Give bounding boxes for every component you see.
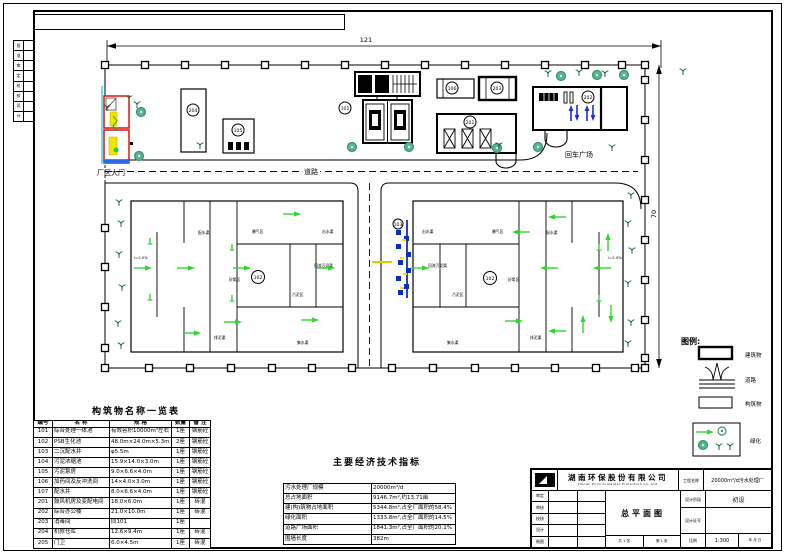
table-cell: 8.0×6.6×4.0m [110,488,172,498]
table-row: 102PSB生化池48.0m×24.0m×5.3m2座钢筋砼 [34,437,211,447]
table-row: 105污泥泵房9.0×6.6×4.0m1座钢筋砼 [34,468,211,478]
table-row: 编号名 称规 格数量备 注 [34,421,211,428]
table-cell: 15.9×14.0×3.0m [110,458,172,468]
road-label: 道路 [303,166,320,176]
table-cell: 砖混 [190,508,211,518]
svg-text:70: 70 [650,210,658,218]
drawing-page: { "frame": { "strip_rows": ["批","准","审",… [0,0,786,555]
svg-text:集水渠: 集水渠 [297,340,309,345]
legend-building-icon [699,347,732,359]
table-cell: 道路广场面积 [284,524,372,534]
indicators-table: 污水处理厂规模20000m³/d总占地面积9146.7m²,约13.71亩建(构… [283,483,456,545]
table-cell: 6.0×4.5m [110,538,172,548]
svg-text:202: 202 [584,95,593,101]
table-row: 总占地面积9146.7m²,约13.71亩 [284,494,456,504]
table-cell: 门卫 [53,538,110,548]
airflow-arrows [569,105,596,121]
table-cell: 围墙长度 [284,534,372,544]
table-cell: 205 [34,538,53,548]
table-cell: 101 [34,427,53,437]
svg-text:污泥区: 污泥区 [292,292,304,297]
table-cell: 203 [34,518,53,528]
table-row: 203消毒间同1011座 [34,518,211,528]
svg-text:102: 102 [486,276,495,282]
sheet-number: 第 1 张 [644,536,681,547]
table-cell: 消毒间 [53,518,110,528]
table-cell: PSB生化池 [53,437,110,447]
table-cell: 1座 [172,498,190,508]
table-cell: 二沉配水井 [53,447,110,457]
table-cell: 104 [34,458,53,468]
table-row: 103二沉配水井φ5.5m1座钢筋砼 [34,447,211,457]
legend: 图例: 建筑物 道路 构筑物 绿化 [681,336,762,456]
table-cell: 规 格 [110,421,172,428]
svg-text:106: 106 [448,86,457,92]
project-label: 工程名称 [679,470,704,490]
table-cell: 钢筋砼 [190,437,211,447]
certificate-label: 设计证号 [681,508,706,533]
svg-text:集水渠: 集水渠 [447,340,459,345]
table-row: 205门卫6.0×4.5m1座砖混 [34,538,211,548]
gate-label: 厂区大门 [97,168,125,177]
table-cell: 5344.8m²,占全厂面积的58.4% [372,504,456,514]
table-cell: 9146.7m²,约13.71亩 [372,494,456,504]
table-row: 201鼓风机房及变配电间18.0×6.0m1座砖混 [34,498,211,508]
table-cell: 钢筋砼 [190,468,211,478]
scale-value: 1:300 [706,534,739,547]
table-cell: 砖混 [190,498,211,508]
stage-label: 设计阶段 [681,491,706,507]
table-cell: 同101 [110,518,172,528]
title-block: 湖南环保股份有限公司 Hunan Environmental Protectio… [530,468,773,549]
table-cell: 107 [34,488,53,498]
building-101-south [363,96,412,143]
svg-text:绿化: 绿化 [750,437,762,445]
svg-text:出水渠: 出水渠 [322,229,334,234]
table-cell: φ5.5m [110,447,172,457]
table-cell: 编号 [34,421,53,428]
inlet-equipment [372,220,411,298]
table-cell: 106 [34,478,53,488]
signature-field[interactable] [549,502,578,512]
svg-text:201: 201 [466,120,475,126]
dimension-height: 70 [650,65,662,368]
table-cell: 污水处理厂规模 [284,484,372,494]
site-plan: 121 70 道路 厂区大门 回车广场 [0,0,786,470]
table-cell: 1333.8m²,占全厂面积的14.5% [372,514,456,524]
table-cell: 48.0m×24.0m×5.3m [110,437,172,447]
table-cell: 1座 [172,528,190,538]
svg-text:曝气区: 曝气区 [252,229,264,234]
scale-label: 比例 [681,534,706,547]
table-cell: 加药间及反冲洗间 [53,478,110,488]
table-cell: 数量 [172,421,190,428]
signature-field[interactable] [549,537,578,547]
total-sheets: 共 1 张 [606,536,644,547]
svg-text:121: 121 [360,36,372,44]
table-cell: 综合处理一体池 [53,427,110,437]
svg-text:i=2.0%: i=2.0% [608,255,622,260]
svg-text:回流污泥渠: 回流污泥渠 [428,263,447,268]
table-cell: 2座 [172,437,190,447]
svg-text:道路: 道路 [304,167,318,176]
table-cell: 名 称 [53,421,110,428]
table-cell: 配水井 [53,488,110,498]
svg-text:204: 204 [189,108,198,114]
legend-road-icon [699,363,735,388]
svg-text:好氧区: 好氧区 [508,277,520,282]
date-field[interactable] [578,502,606,512]
table-cell: 105 [34,468,53,478]
table-cell: 21.0×10.0m [110,508,172,518]
table-cell: 总占地面积 [284,494,372,504]
table-cell: 14×4.0×3.0m [110,478,172,488]
table-row: 建(构)筑物占地面积5344.8m²,占全厂面积的58.4% [284,504,456,514]
svg-text:配水渠: 配水渠 [546,230,558,235]
table-cell [190,518,211,528]
table-cell: 钢筋砼 [190,488,211,498]
signature-grid: 审定 审核 校核 设计 制图 [532,491,606,547]
company-name: 湖南环保股份有限公司 Hunan Environmental Protectio… [558,470,679,490]
structures-table: 编号名 称规 格数量备 注 101综合处理一体池有效容积10000m³左右1座钢… [33,420,211,549]
signature-field[interactable] [549,514,578,524]
table-cell: 9.0×6.6×4.0m [110,468,172,478]
date-field[interactable] [578,537,606,547]
table-cell: 382m [372,534,456,544]
table-cell: 备 注 [190,421,211,428]
table-cell: 103 [34,447,53,457]
table-cell: 202 [34,508,53,518]
table-row: 绿化面积1333.8m²,占全厂面积的14.5% [284,514,456,524]
table-cell: 1座 [172,478,190,488]
svg-text:排泥渠: 排泥渠 [530,335,542,340]
company-logo [532,470,558,490]
table-cell: 1座 [172,468,190,478]
drawing-name: 总平面图 [606,491,680,536]
table-cell: 污泥浓缩池 [53,458,110,468]
structures-table-title: 构筑物名称一览表 [92,404,180,417]
table-cell: 1座 [172,508,190,518]
svg-text:出水渠: 出水渠 [422,229,434,234]
svg-text:构筑物: 构筑物 [745,400,762,408]
legend-title: 图例: [681,336,700,346]
date-field[interactable] [578,491,606,501]
table-row: 202综合办公楼21.0×10.0m1座砖混 [34,508,211,518]
svg-text:建筑物: 建筑物 [745,351,762,359]
basin-labels-left: 配水渠 曝气区 出水渠 i=2.0% 好氧区 回流污泥渠 污泥区 排泥渠 集水渠 [134,229,334,345]
table-cell: 钢筋砼 [190,427,211,437]
basin-labels-right: 配水渠 曝气区 出水渠 i=2.0% 好氧区 回流污泥渠 污泥区 排泥渠 集水渠 [422,229,622,345]
svg-text:排泥渠: 排泥渠 [214,335,226,340]
table-cell: 18.0×6.0m [110,498,172,508]
table-cell: 1841.3m²,占全厂面积的20.1% [372,524,456,534]
date-line: 年 月 日 [739,534,771,547]
date-field[interactable] [578,525,606,535]
table-cell: 钢筋砼 [190,447,211,457]
plaza-label: 回车广场 [565,150,593,159]
table-row: 污水处理厂规模20000m³/d [284,484,456,494]
table-row: 101综合处理一体池有效容积10000m³左右1座钢筋砼 [34,427,211,437]
table-cell: 12.6×9.4m [110,528,172,538]
certificate-value [706,508,771,533]
svg-text:曝气区: 曝气区 [492,229,504,234]
legend-greenery-icon [693,423,740,456]
svg-text:i=2.0%: i=2.0% [134,255,148,260]
table-cell: 钢筋砼 [190,478,211,488]
svg-text:101: 101 [341,106,350,112]
stage-value: 初设 [706,491,771,507]
svg-text:102: 102 [254,275,263,281]
table-cell: 201 [34,498,53,508]
table-cell: 综合办公楼 [53,508,110,518]
table-cell: 1座 [172,518,190,528]
table-cell: 1座 [172,538,190,548]
table-cell: 102 [34,437,53,447]
svg-text:配水渠: 配水渠 [198,230,210,235]
table-cell: 20000m³/d [372,484,456,494]
table-cell: 鼓风机房及变配电间 [53,498,110,508]
legend-structure-icon [699,397,732,408]
table-row: 204机修仓库12.6×9.4m1座砖混 [34,528,211,538]
signature-field[interactable] [549,491,578,501]
building-101-north [355,72,420,96]
table-cell: 钢筋砼 [190,458,211,468]
table-cell: 1座 [172,458,190,468]
svg-text:103: 103 [394,222,403,228]
svg-text:105: 105 [234,128,243,134]
table-row: 106加药间及反冲洗间14×4.0×3.0m1座钢筋砼 [34,478,211,488]
table-cell: 机修仓库 [53,528,110,538]
table-cell: 砖混 [190,538,211,548]
table-cell: 绿化面积 [284,514,372,524]
indicators-table-title: 主要经济技术指标 [333,455,421,468]
table-cell: 1座 [172,488,190,498]
table-row: 围墙长度382m [284,534,456,544]
svg-text:污泥区: 污泥区 [452,292,464,297]
table-cell: 1座 [172,447,190,457]
date-field[interactable] [578,514,606,524]
project-name: 20000m³/d污水处理厂 [704,470,771,490]
svg-text:203: 203 [493,86,502,92]
table-row: 104污泥浓缩池15.9×14.0×3.0m1座钢筋砼 [34,458,211,468]
table-cell: 204 [34,528,53,538]
svg-text:道路: 道路 [745,376,757,384]
table-cell: 污泥泵房 [53,468,110,478]
table-cell: 1座 [172,427,190,437]
table-cell: 建(构)筑物占地面积 [284,504,372,514]
table-cell: 有效容积10000m³左右 [110,427,172,437]
table-row: 道路广场面积1841.3m²,占全厂面积的20.1% [284,524,456,534]
signature-field[interactable] [549,525,578,535]
table-cell: 砖混 [190,528,211,538]
svg-text:好氧区: 好氧区 [229,277,241,282]
table-row: 107配水井8.0×6.6×4.0m1座钢筋砼 [34,488,211,498]
